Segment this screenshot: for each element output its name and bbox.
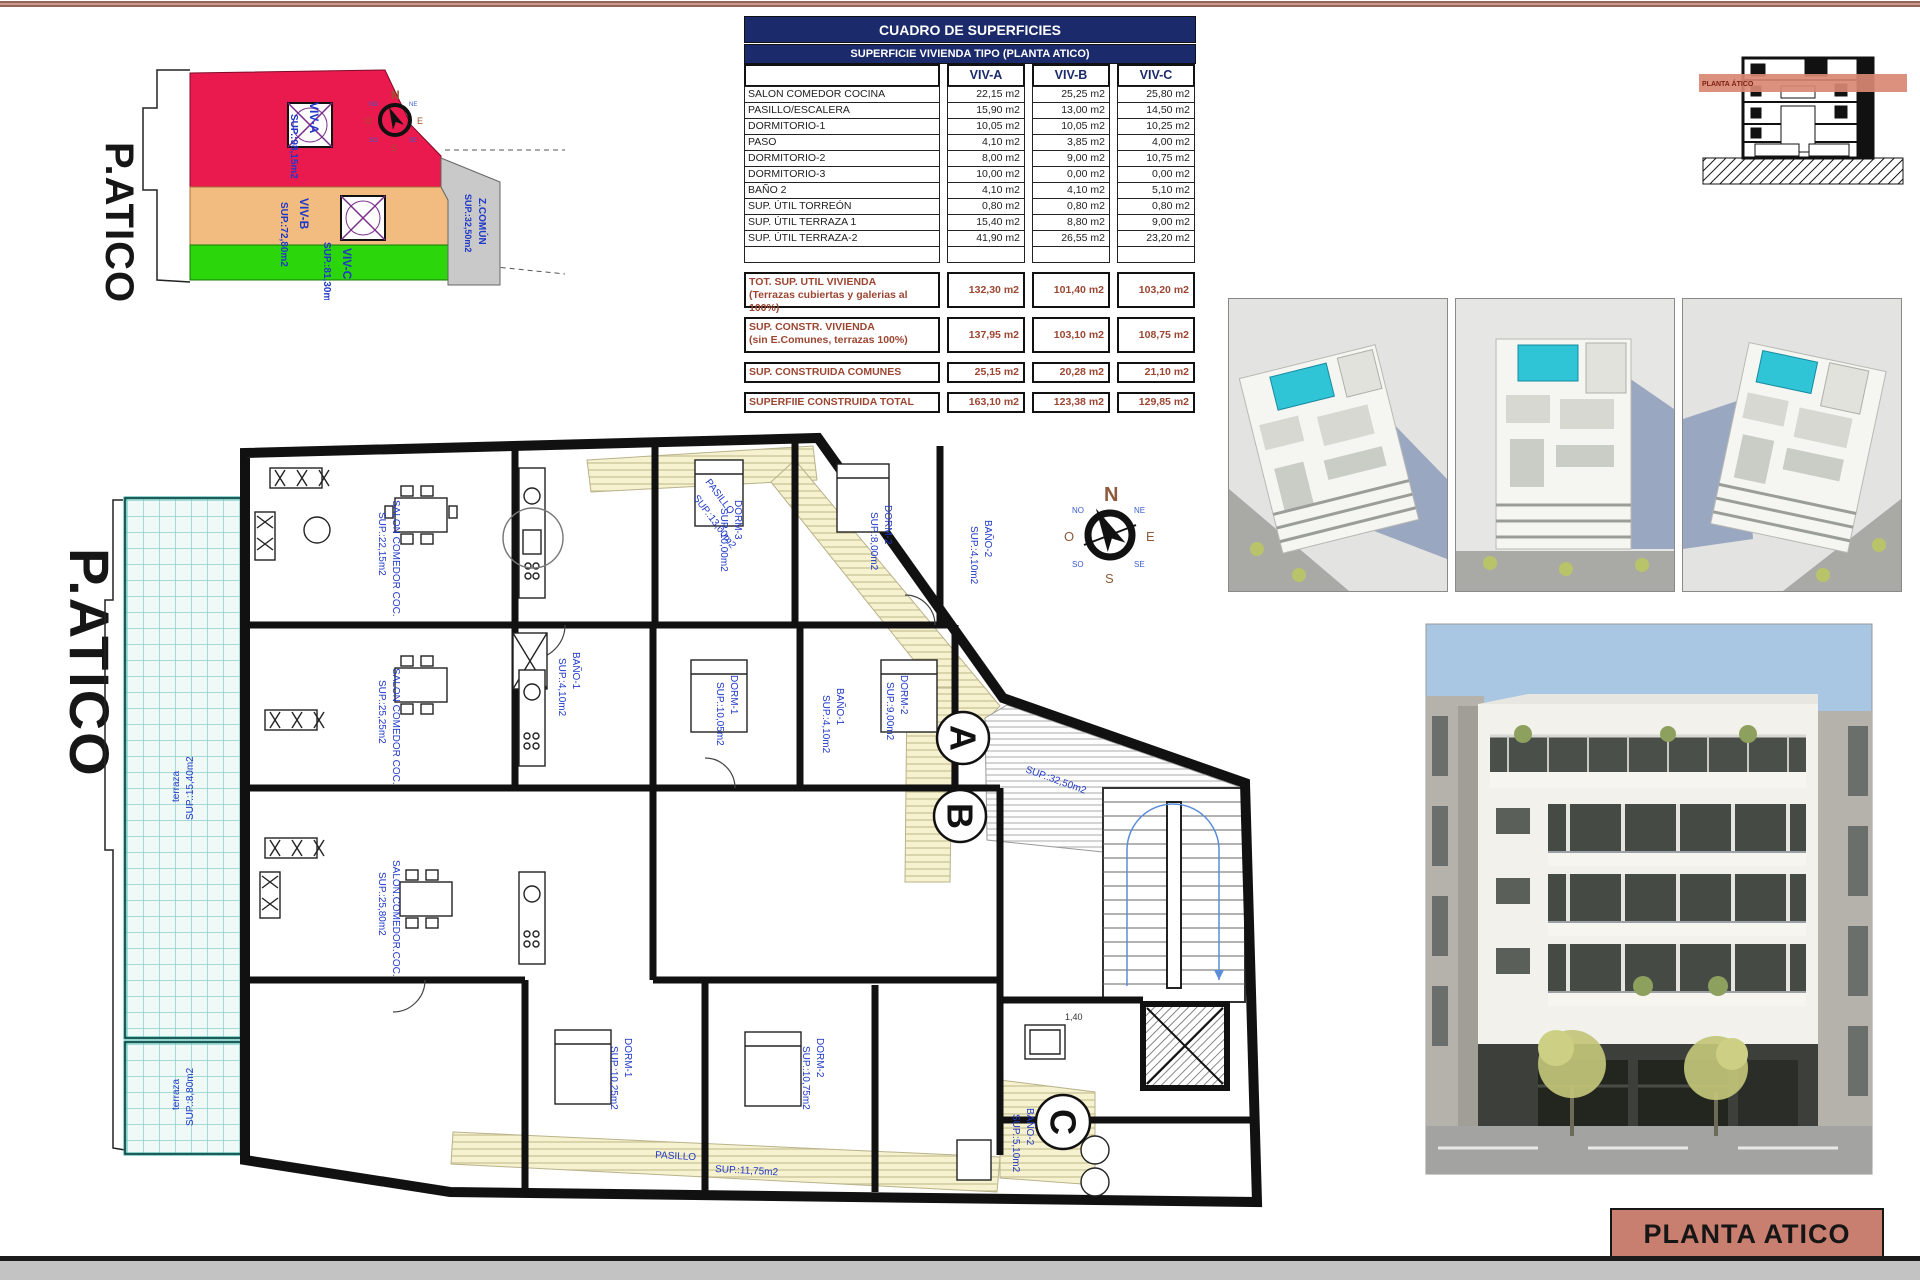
- unit-b-marker: B: [940, 803, 981, 829]
- summary-value: 20,28 m2: [1032, 362, 1110, 383]
- atico-terrace: [1490, 736, 1806, 772]
- room-label: SUP.:10,25m2: [608, 1046, 619, 1110]
- room-label: SUP.:5,10m2: [1010, 1114, 1021, 1173]
- col-header-viv-a: VIV-A: [947, 64, 1025, 87]
- compass-se: SE: [1134, 560, 1145, 569]
- main-building: [1478, 694, 1818, 1126]
- building-section-sketch: PLANTA ÁTICO: [1685, 30, 1920, 195]
- row-value: 15,40 m2: [947, 214, 1025, 231]
- summary-sublabel: (sin E.Comunes, terrazas 100%): [749, 334, 908, 346]
- room-label: SUP.:22,15m2: [376, 512, 387, 576]
- unit-c-marker: C: [1043, 1109, 1084, 1135]
- floor-plan: A B C N S E O NE NO SE SO terraza SUP.:1…: [95, 420, 1265, 1220]
- terrace-strip: [105, 498, 243, 1154]
- compass-o: O: [365, 116, 372, 126]
- col-header-viv-b: VIV-B: [1032, 64, 1110, 87]
- row-value: 22,15 m2: [947, 86, 1025, 103]
- row-label: SALON COMEDOR COCINA: [744, 86, 940, 103]
- room-label: DORM-1: [728, 675, 739, 715]
- summary-value: 103,20 m2: [1117, 272, 1195, 308]
- drawing-sheet: { "page": { "title_block": "PLANTA ATICO…: [0, 0, 1920, 1280]
- summary-value: 137,95 m2: [947, 317, 1025, 353]
- section-band-label: PLANTA ÁTICO: [1702, 79, 1754, 88]
- row-label: DORMITORIO-1: [744, 118, 940, 135]
- row-label: SUP. ÚTIL TERRAZA-2: [744, 230, 940, 247]
- spacer-cell: [1117, 246, 1195, 263]
- col-header-blank: [744, 64, 940, 87]
- room-label: SUP.:8,80m2: [185, 1067, 196, 1126]
- compass-o: O: [1064, 529, 1074, 544]
- title-block: PLANTA ATICO: [1610, 1208, 1884, 1260]
- zone-b-area: SUP.:72,80m2: [278, 202, 289, 267]
- summary-value: 25,15 m2: [947, 362, 1025, 383]
- total-row: SUPERFIIE CONSTRUIDA TOTAL 163,10 m2 123…: [744, 392, 1196, 413]
- room-label: SUP.:8,00m2: [868, 512, 879, 571]
- summary-sublabel: (Terrazas cubiertas y galerias al 100%): [749, 289, 908, 314]
- total-value: 163,10 m2: [947, 392, 1025, 413]
- building: [1496, 339, 1631, 549]
- row-value: 26,55 m2: [1032, 230, 1110, 247]
- row-value: 23,20 m2: [1117, 230, 1195, 247]
- room-label: DORM-1: [622, 1038, 633, 1078]
- room-label: BAÑO-1: [570, 652, 583, 690]
- room-label: DORM-2: [814, 1038, 825, 1078]
- col-header-viv-c: VIV-C: [1117, 64, 1195, 87]
- dimension-label: 1,40: [1065, 1012, 1083, 1022]
- zone-viv-c: [190, 245, 448, 280]
- room-label: SUP.:10,75m2: [800, 1046, 811, 1110]
- row-value: 10,05 m2: [1032, 118, 1110, 135]
- room-label: BAÑO-2: [982, 520, 995, 558]
- room-label: SUP.:10,05m2: [714, 682, 725, 746]
- room-label: SUP.:25,80m2: [376, 872, 387, 936]
- plan-compass: N S E O NE NO SE SO: [1064, 484, 1155, 586]
- aerial-render-2: [1455, 298, 1675, 592]
- row-value: 4,10 m2: [947, 182, 1025, 199]
- door-swings: [393, 595, 935, 1012]
- compass-so: SO: [1072, 560, 1084, 569]
- row-label: PASO: [744, 134, 940, 151]
- total-value: 123,38 m2: [1032, 392, 1110, 413]
- section-ground: [1703, 158, 1903, 184]
- room-label: SUP.:4,10m2: [820, 695, 831, 754]
- row-value: 0,80 m2: [1117, 198, 1195, 215]
- section-building: [1743, 58, 1873, 158]
- room-label: SALON COMEDOR COC.: [390, 500, 401, 617]
- compass-ne: NE: [409, 102, 417, 108]
- row-label: SUP. ÚTIL TORREÓN: [744, 198, 940, 215]
- compass-n: N: [1104, 484, 1118, 506]
- compass-so: SO: [369, 138, 378, 144]
- compass-s: S: [391, 143, 397, 153]
- zone-comun-area: SUP.:32,50m2: [463, 194, 473, 252]
- summary-row-constr: SUP. CONSTR. VIVIENDA (sin E.Comunes, te…: [744, 317, 1196, 353]
- spacer-cell: [744, 246, 940, 263]
- room-label: BAÑO-1: [834, 688, 847, 726]
- room-label: PASILLO: [655, 1150, 697, 1163]
- row-value: 10,25 m2: [1117, 118, 1195, 135]
- site-boundary: [143, 70, 190, 282]
- row-value: 10,75 m2: [1117, 150, 1195, 167]
- staircase: [1103, 788, 1245, 1002]
- room-label: SUP.:15,40m2: [185, 756, 196, 820]
- row-value: 4,00 m2: [1117, 134, 1195, 151]
- room-label: DORM-2: [898, 675, 909, 715]
- row-value: 4,10 m2: [947, 134, 1025, 151]
- row-value: 3,85 m2: [1032, 134, 1110, 151]
- title-block-text: PLANTA ATICO: [1644, 1219, 1851, 1250]
- table-grid: VIV-A VIV-B VIV-C SALON COMEDOR COCINA 2…: [744, 65, 1196, 263]
- room-label: SUP.:9,00m2: [884, 682, 895, 741]
- room-label: SALON COMEDOR COC.: [390, 668, 401, 785]
- zone-comun-name: Z.COMÚN: [476, 198, 489, 245]
- row-value: 15,90 m2: [947, 102, 1025, 119]
- row-value: 9,00 m2: [1032, 150, 1110, 167]
- room-label: terraza: [171, 770, 182, 802]
- zone-a-area: SUP.:98,15m2: [288, 114, 299, 179]
- compass-ne: NE: [1134, 506, 1145, 515]
- summary-value: 103,10 m2: [1032, 317, 1110, 353]
- zone-a-name: VIV-A: [307, 102, 321, 134]
- row-label: PASILLO/ESCALERA: [744, 102, 940, 119]
- row-value: 0,00 m2: [1117, 166, 1195, 183]
- summary-label: TOT. SUP. UTIL VIVIENDA: [749, 276, 876, 288]
- summary-row-util: TOT. SUP. UTIL VIVIENDA (Terrazas cubier…: [744, 272, 1196, 308]
- row-value: 0,80 m2: [1032, 198, 1110, 215]
- sheet-top-border: [0, 0, 1920, 8]
- sheet-bottom-strip: [0, 1261, 1920, 1280]
- zone-b-name: VIV-B: [297, 198, 311, 230]
- zone-c-name: VIV-C: [340, 248, 354, 280]
- table-title: CUADRO DE SUPERFICIES: [744, 16, 1196, 43]
- compass-e: E: [1146, 529, 1155, 544]
- room-label: DORM-2: [882, 505, 893, 545]
- row-value: 10,05 m2: [947, 118, 1025, 135]
- summary-label: SUP. CONSTR. VIVIENDA: [749, 321, 875, 333]
- summary-row-comunes: SUP. CONSTRUIDA COMUNES 25,15 m2 20,28 m…: [744, 362, 1196, 383]
- compass-e: E: [417, 116, 423, 126]
- site-key-diagram: VIV-A SUP.:98,15m2 VIV-B SUP.:72,80m2 VI…: [95, 30, 575, 300]
- zone-c-area: SUP.:81,30m2: [321, 242, 332, 300]
- elevator: [1143, 1004, 1227, 1088]
- summary-value: 21,10 m2: [1117, 362, 1195, 383]
- compass-n: N: [391, 88, 400, 102]
- total-value: 129,85 m2: [1117, 392, 1195, 413]
- row-label: DORMITORIO-2: [744, 150, 940, 167]
- room-label: terraza: [171, 1078, 182, 1110]
- spacer-cell: [947, 246, 1025, 263]
- row-value: 0,80 m2: [947, 198, 1025, 215]
- room-label: DORM-3: [732, 500, 743, 540]
- unit-a-marker: A: [943, 725, 984, 751]
- row-value: 41,90 m2: [947, 230, 1025, 247]
- row-label: DORMITORIO-3: [744, 166, 940, 183]
- compass-se: SE: [409, 138, 417, 144]
- row-value: 10,00 m2: [947, 166, 1025, 183]
- row-value: 0,00 m2: [1032, 166, 1110, 183]
- compass-no: NO: [1072, 506, 1084, 515]
- surfaces-table: CUADRO DE SUPERFICIES SUPERFICIE VIVIEND…: [744, 16, 1196, 413]
- compass-no: NO: [369, 102, 378, 108]
- zone-viv-b: [190, 187, 448, 245]
- total-label: SUPERFIIE CONSTRUIDA TOTAL: [744, 392, 940, 413]
- compass-s: S: [1105, 571, 1114, 586]
- facade-render: [1418, 616, 1880, 1182]
- row-value: 8,00 m2: [947, 150, 1025, 167]
- table-subtitle: SUPERFICIE VIVIENDA TIPO (PLANTA ATICO): [744, 44, 1196, 64]
- row-value: 14,50 m2: [1117, 102, 1195, 119]
- left-neighbour-building: [1426, 696, 1484, 1126]
- row-value: 25,80 m2: [1117, 86, 1195, 103]
- row-value: 25,25 m2: [1032, 86, 1110, 103]
- room-label: SUP.:25,25m2: [376, 680, 387, 744]
- row-label: BAÑO 2: [744, 182, 940, 199]
- row-value: 5,10 m2: [1117, 182, 1195, 199]
- summary-value: 101,40 m2: [1032, 272, 1110, 308]
- row-value: 9,00 m2: [1117, 214, 1195, 231]
- row-value: 13,00 m2: [1032, 102, 1110, 119]
- row-value: 4,10 m2: [1032, 182, 1110, 199]
- summary-value: 108,75 m2: [1117, 317, 1195, 353]
- row-value: 8,80 m2: [1032, 214, 1110, 231]
- site-elevator-symbol-2: [341, 196, 385, 240]
- room-label: SUP.:4,10m2: [968, 526, 979, 585]
- right-neighbour-building: [1814, 711, 1872, 1126]
- summary-label: SUP. CONSTRUIDA COMUNES: [744, 362, 940, 383]
- aerial-render-3: [1682, 298, 1902, 592]
- room-label: BAÑO-2: [1024, 1108, 1037, 1146]
- room-label: SALON.COMEDOR.COC.: [390, 860, 401, 977]
- room-label: SUP.:10,00m2: [718, 508, 729, 572]
- room-label: SUP.:4,10m2: [556, 658, 567, 717]
- summary-value: 132,30 m2: [947, 272, 1025, 308]
- spacer-cell: [1032, 246, 1110, 263]
- row-label: SUP. ÚTIL TERRAZA 1: [744, 214, 940, 231]
